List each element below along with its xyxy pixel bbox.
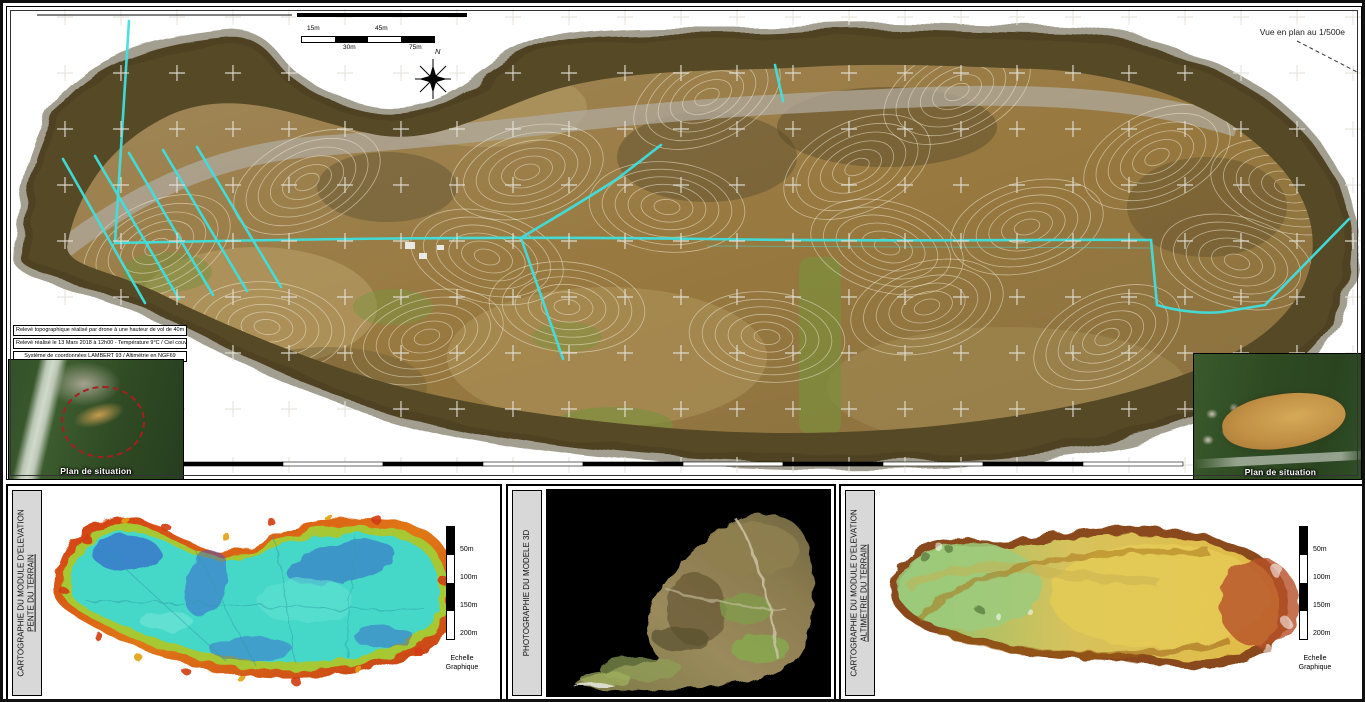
- slope-map-image: [46, 491, 450, 695]
- panel-title-line2: PENTE DU TERRAIN: [27, 493, 37, 693]
- scale-caption: Echelle Graphique: [1279, 654, 1351, 673]
- panel-title-strip: PHOTOGRAPHIE DU MODELE 3D: [512, 490, 542, 696]
- model3d-viewport: [546, 489, 831, 697]
- scale-label-100m: 100m: [1313, 574, 1331, 581]
- panel-title-line1: CARTOGRAPHIE DU MODULE D'ELEVATION: [850, 493, 860, 693]
- scale-label-45m: 45m: [375, 25, 388, 32]
- site-marker-circle: [61, 386, 145, 458]
- panel-title-line1: PHOTOGRAPHIE DU MODELE 3D: [522, 493, 532, 693]
- scale-bar: [1299, 526, 1308, 640]
- survey-note-line: Relevé topographique réalisé par drone à…: [13, 325, 187, 336]
- panel-title-line2: ALTIMETRIE DU TERRAIN: [860, 493, 870, 693]
- view-scale-label: Vue en plan au 1/500e: [1260, 27, 1345, 37]
- model3d-panel: PHOTOGRAPHIE DU MODELE 3D: [506, 484, 836, 702]
- scale-label-50m: 50m: [460, 546, 474, 553]
- scale-label-100m: 100m: [460, 574, 478, 581]
- model3d-image: [546, 489, 832, 697]
- inset-caption: Plan de situation: [9, 466, 183, 476]
- panel-title-strip: CARTOGRAPHIE DU MODULE D'ELEVATION PENTE…: [12, 490, 42, 696]
- scale-label-200m: 200m: [460, 630, 478, 637]
- panel-title-strip: CARTOGRAPHIE DU MODULE D'ELEVATION ALTIM…: [845, 490, 875, 696]
- compass-north-label: N: [435, 47, 440, 56]
- altimetry-map-image: [879, 491, 1303, 695]
- survey-plan-sheet: Vue en plan au 1/500e 15m 45m 30m 75m N: [0, 0, 1365, 702]
- scale-label-30m: 30m: [343, 44, 356, 51]
- compass-rose: N: [411, 49, 455, 105]
- scale-label-200m: 200m: [1313, 630, 1331, 637]
- view-leader-line: [1297, 41, 1359, 73]
- situation-inset-right: Plan de situation: [1193, 353, 1362, 480]
- compass-star-icon: [411, 57, 455, 101]
- orthophoto-plan-panel: Vue en plan au 1/500e 15m 45m 30m 75m N: [6, 6, 1362, 480]
- orthophoto-map: [7, 7, 1361, 479]
- inset-caption: Plan de situation: [1194, 467, 1362, 477]
- vertical-scale-bar: 50m 100m 150m 200m Echelle Graphique: [434, 526, 494, 696]
- scale-label-150m: 150m: [460, 602, 478, 609]
- altimetry-map-panel: CARTOGRAPHIE DU MODULE D'ELEVATION ALTIM…: [839, 484, 1365, 702]
- map-neatline: [183, 462, 1183, 466]
- situation-inset-left: Plan de situation: [8, 359, 184, 480]
- scale-bar: [446, 526, 455, 640]
- scale-bar-segments: [301, 36, 435, 43]
- scale-label-50m: 50m: [1313, 546, 1327, 553]
- scale-label-15m: 15m: [307, 25, 320, 32]
- survey-note-line: Relevé réalisé le 13 Mars 2018 à 12h00 -…: [13, 338, 187, 349]
- scale-label-150m: 150m: [1313, 602, 1331, 609]
- panel-title-line1: CARTOGRAPHIE DU MODULE D'ELEVATION: [17, 493, 27, 693]
- vertical-scale-bar: 50m 100m 150m 200m Echelle Graphique: [1287, 526, 1347, 696]
- scale-caption: Echelle Graphique: [426, 654, 498, 673]
- slope-map-panel: CARTOGRAPHIE DU MODULE D'ELEVATION PENTE…: [6, 484, 502, 702]
